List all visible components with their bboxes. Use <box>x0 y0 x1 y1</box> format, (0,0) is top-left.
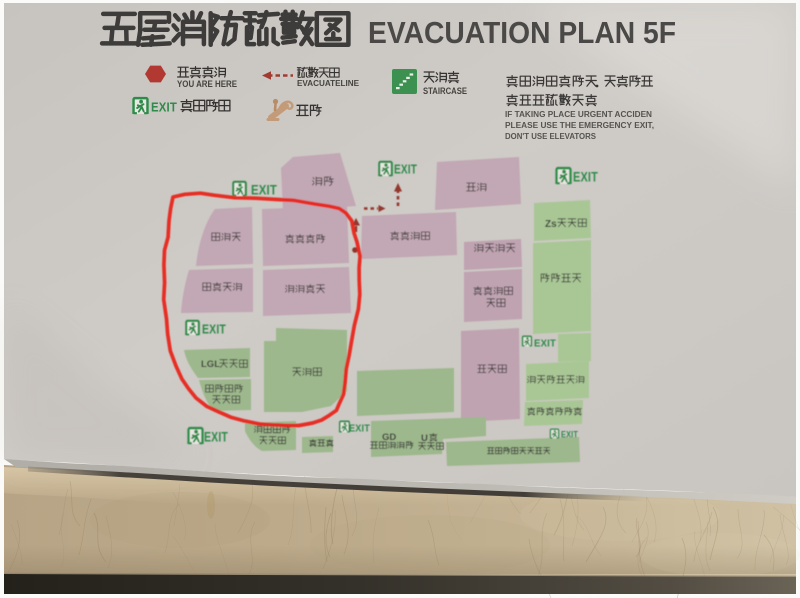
svg-text:STAIRCASE: STAIRCASE <box>423 86 467 96</box>
svg-text:LGL: LGL <box>201 359 220 370</box>
svg-text:EXIT: EXIT <box>202 322 226 337</box>
svg-text:DON'T USE ELEVATORS: DON'T USE ELEVATORS <box>505 131 596 141</box>
svg-text:EXIT: EXIT <box>151 100 177 115</box>
svg-text:PLEASE USE THE EMERGENCY EXIT,: PLEASE USE THE EMERGENCY EXIT, <box>505 120 654 130</box>
svg-text:EXIT: EXIT <box>394 162 417 177</box>
svg-text:Zs: Zs <box>545 219 557 230</box>
svg-text:EXIT: EXIT <box>573 170 598 185</box>
svg-text:GD: GD <box>382 432 396 443</box>
svg-text:EXIT: EXIT <box>534 338 556 350</box>
svg-text:EXIT: EXIT <box>251 183 277 198</box>
svg-text:EXIT: EXIT <box>204 430 228 445</box>
svg-text:EXIT: EXIT <box>561 430 578 440</box>
svg-text:EXIT: EXIT <box>349 423 370 435</box>
svg-text:EVACUATELINE: EVACUATELINE <box>297 78 359 88</box>
svg-text:IF TAKING PLACE URGENT ACCIDEN: IF TAKING PLACE URGENT ACCIDEN <box>505 109 652 119</box>
svg-text:YOU ARE HERE: YOU ARE HERE <box>177 79 237 89</box>
svg-text:EVACUATION PLAN 5F: EVACUATION PLAN 5F <box>368 15 676 50</box>
